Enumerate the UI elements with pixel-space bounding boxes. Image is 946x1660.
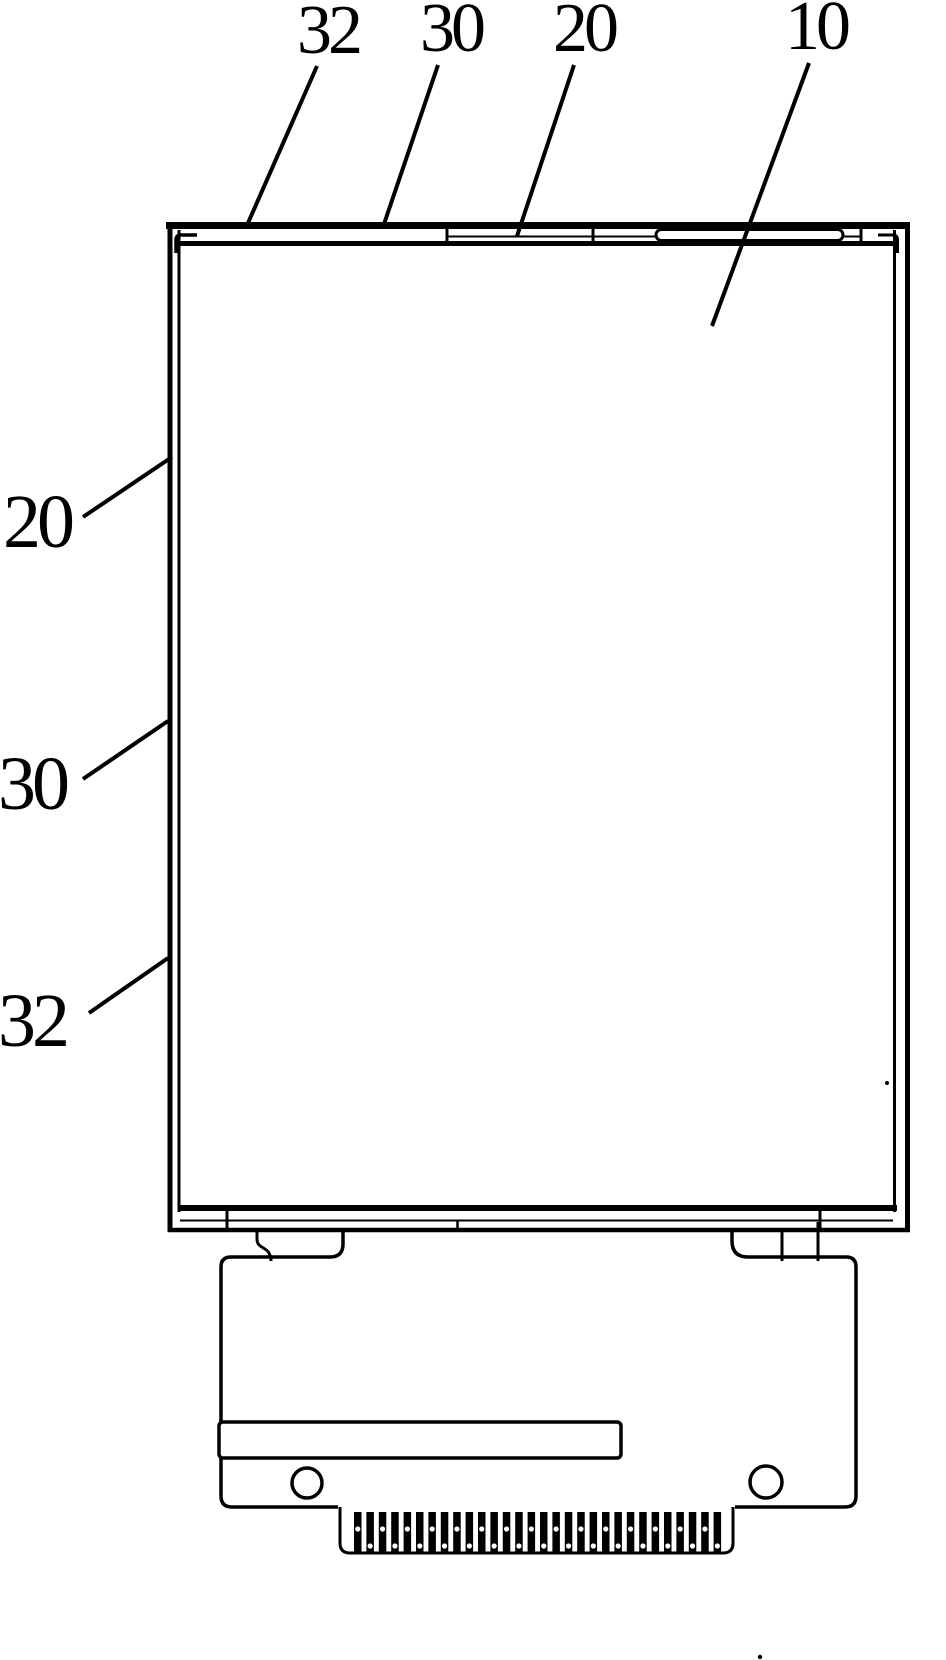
leader-top-20	[517, 65, 574, 236]
label-top-30: 30	[420, 0, 482, 64]
connector-outline	[340, 1507, 733, 1553]
board-slot	[219, 1422, 621, 1458]
scan-specks	[758, 1081, 889, 1659]
top-slot	[656, 230, 843, 241]
label-left-20: 20	[3, 484, 71, 560]
leader-left-32	[89, 958, 168, 1013]
label-left-32: 32	[0, 983, 66, 1059]
outer-frame	[166, 222, 910, 1232]
leader-left-20	[83, 457, 172, 517]
driver-board-left-outline	[221, 1232, 343, 1507]
leader-top-30	[383, 65, 438, 227]
label-top-32: 32	[297, 0, 359, 66]
leader-left-30	[83, 721, 168, 779]
figure-canvas: 32 30 20 10 20 30 32	[0, 0, 946, 1660]
driver-board	[219, 1232, 856, 1507]
driver-board-right-outline	[732, 1232, 856, 1507]
figure-drawing	[0, 0, 946, 1660]
label-top-10: 10	[785, 0, 847, 62]
leader-top-10	[712, 63, 809, 326]
leader-top-32	[248, 66, 317, 223]
connector-pin-teeth	[354, 1512, 721, 1552]
mounting-hole-right	[750, 1466, 782, 1498]
top-edge-details	[176, 228, 898, 253]
mounting-hole-left	[292, 1468, 322, 1498]
display-panel-outline	[176, 230, 897, 1221]
label-top-20: 20	[553, 0, 615, 64]
leader-lines	[83, 63, 809, 1013]
connector	[340, 1507, 733, 1553]
label-left-30: 30	[0, 746, 66, 822]
